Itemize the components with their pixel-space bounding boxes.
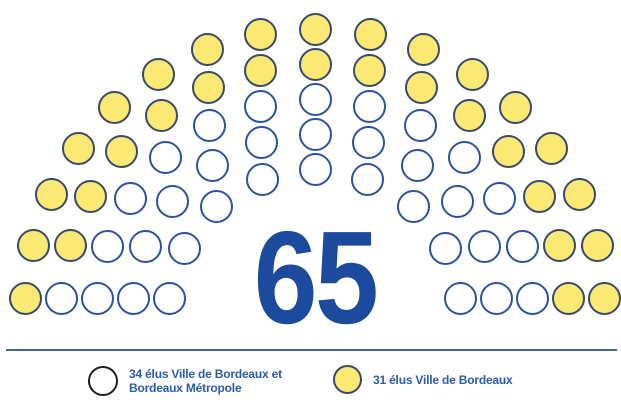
seat (246, 163, 279, 196)
legend-divider (6, 349, 617, 351)
seat (45, 282, 78, 315)
legend-label-metropole: 34 élus Ville de Bordeaux et Bordeaux Mé… (129, 367, 282, 395)
seat (499, 91, 532, 124)
seat (588, 282, 621, 315)
seat (105, 135, 138, 168)
seat (91, 230, 124, 263)
seat (62, 132, 95, 165)
seat (535, 132, 568, 165)
seat (196, 149, 229, 182)
seat (245, 126, 278, 159)
seat (299, 83, 332, 116)
seat (405, 71, 438, 104)
seat (9, 282, 42, 315)
seat (492, 135, 525, 168)
seat (17, 229, 50, 262)
seat (483, 182, 516, 215)
seat (441, 185, 474, 218)
seat (506, 230, 539, 263)
total-seats-label: 65 (240, 230, 390, 325)
seat (444, 282, 477, 315)
seat (468, 230, 501, 263)
seat (153, 282, 186, 315)
seat (244, 18, 277, 51)
seat (299, 13, 332, 46)
seat (401, 149, 434, 182)
bordeaux-council-seat-chart: 65 34 élus Ville de Bordeaux et Bordeaux… (0, 0, 621, 414)
legend-item-metropole: 34 élus Ville de Bordeaux et Bordeaux Mé… (88, 366, 282, 396)
seat (54, 229, 87, 262)
seat (552, 282, 585, 315)
seat (563, 178, 596, 211)
seat (581, 229, 614, 262)
seat (299, 153, 332, 186)
seat (543, 229, 576, 262)
seat (129, 230, 162, 263)
seat (523, 180, 556, 213)
seat (244, 90, 277, 123)
seat (456, 58, 489, 91)
seat (453, 99, 486, 132)
white-seat-swatch-icon (88, 366, 118, 396)
seat (98, 91, 131, 124)
seat (74, 180, 107, 213)
seat (192, 71, 225, 104)
seat (429, 232, 462, 265)
seat (448, 141, 481, 174)
seat (81, 282, 114, 315)
seat (480, 282, 513, 315)
seat (191, 33, 224, 66)
seat (351, 163, 384, 196)
seat (168, 232, 201, 265)
seat (244, 54, 277, 87)
seat (114, 182, 147, 215)
seat (352, 126, 385, 159)
seat (117, 282, 150, 315)
seat (149, 141, 182, 174)
seat (35, 178, 68, 211)
seat (353, 54, 386, 87)
seat (142, 58, 175, 91)
seat (516, 282, 549, 315)
seat (407, 33, 440, 66)
seat (397, 190, 430, 223)
seat (299, 48, 332, 81)
yellow-seat-swatch-icon (333, 365, 362, 394)
seat (200, 190, 233, 223)
seat (404, 109, 437, 142)
legend-item-ville: 31 élus Ville de Bordeaux (333, 365, 513, 394)
seat (353, 90, 386, 123)
seat (193, 109, 226, 142)
seat (299, 118, 332, 151)
seat (145, 99, 178, 132)
seat (156, 185, 189, 218)
seat (354, 18, 387, 51)
legend-label-ville: 31 élus Ville de Bordeaux (373, 373, 513, 387)
